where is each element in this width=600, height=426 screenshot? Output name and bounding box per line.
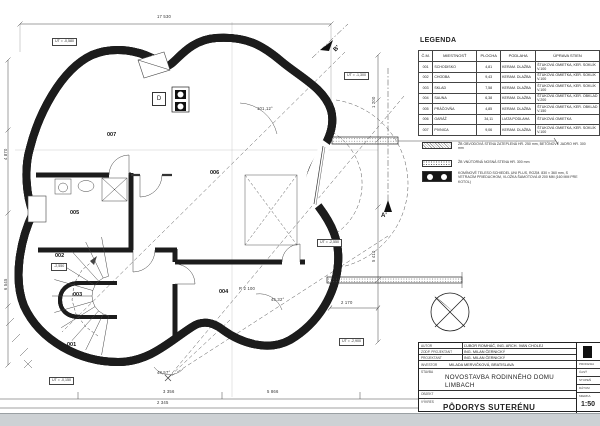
- exterior-stair: [28, 52, 170, 222]
- drawing-title: PÔDORYS SUTERÉNU: [443, 403, 535, 412]
- note-text: ŽB OBVODOVÁ STENA ZATEPLENÁ HR. 250 mm, …: [458, 142, 586, 151]
- cell-name: SAUNA: [433, 93, 477, 104]
- note-text: KOMÍNOVÉ TELESO SCHIEDEL UNI PLUS, ROZM.…: [458, 171, 586, 184]
- tb-label: AUTOR: [421, 344, 432, 348]
- cell-area: 9,43: [477, 72, 501, 83]
- col-header-room: MIESTNOSŤ: [433, 51, 477, 62]
- dim-label: 2 345: [157, 401, 168, 405]
- chimney-icon: [172, 87, 189, 112]
- interior-wall-hatch-icon: [422, 160, 452, 167]
- terrain-level-label: UT = -1,300: [344, 72, 369, 80]
- dim-label-overall-width: 17 530: [157, 15, 171, 19]
- cell-area: 7,58: [477, 83, 501, 94]
- legend-row: 002 CHODBA 9,43 KERAM. DLAŽBA ŠTUKOVÁ OM…: [419, 72, 600, 83]
- tb-label-stavba: STAVBA: [421, 370, 433, 374]
- company-logo: [583, 346, 592, 358]
- dim-label: 4 870: [4, 149, 8, 160]
- dashed-lines: [62, 52, 408, 378]
- cell-name: GARÁŽ: [433, 114, 477, 125]
- tb-side-label: MIERKA: [579, 394, 591, 398]
- dim-label: 5 866: [267, 390, 278, 394]
- cell-name: CHODBA: [433, 72, 477, 83]
- site-boundary: [0, 392, 418, 408]
- tb-label: INVESTOR: [421, 363, 437, 367]
- dim-label: 2 170: [341, 301, 352, 305]
- cell-area: 4,81: [477, 62, 501, 73]
- terrain-level-label: UT = -0,580: [52, 38, 77, 46]
- dim-label: 6 545: [4, 279, 8, 290]
- cell-floor: KERAM. DLAŽBA: [501, 62, 536, 73]
- dim-label-radius: R 2 100: [239, 287, 255, 291]
- room-label-006: 006: [210, 171, 219, 177]
- floor-level-label-002: -2,550: [51, 263, 67, 271]
- cell-floor: KERAM. DLAŽBA: [501, 125, 536, 136]
- tb-stavba-line2: LIMBACH: [445, 382, 475, 389]
- dim-label: 1 200: [372, 97, 376, 108]
- tb-side-label: DÁTUM: [579, 386, 590, 390]
- cell-area: 4,85: [477, 104, 501, 115]
- cell-name: PIVNICA: [433, 125, 477, 136]
- door-symbol-label: D: [157, 96, 161, 102]
- terrain-marks: [6, 318, 32, 368]
- north-arrow-icon: [431, 293, 469, 331]
- room-label-004: 004: [219, 290, 228, 296]
- cell-name: SCHODISKO: [433, 62, 477, 73]
- tb-side-label: PROFESIA: [579, 362, 594, 366]
- cell-walls: ŠTUKOVÁ OMIETKA, KER. OBKLAD V.200: [536, 93, 600, 104]
- col-header-number: Č.M.: [419, 51, 433, 62]
- room-label-007: 007: [107, 133, 116, 139]
- tb-value: ĽUBOR ROMHÁČ, ING. ARCH. IVAN CHOLEJ: [464, 344, 543, 348]
- dim-label-angle-garage: 101,12°: [257, 107, 273, 111]
- cell-floor: KERAM. DLAŽBA: [501, 93, 536, 104]
- legend-row: 004 SAUNA 6,38 KERAM. DLAŽBA ŠTUKOVÁ OMI…: [419, 93, 600, 104]
- section-label-a: A': [381, 213, 387, 219]
- cell-num: 001: [419, 62, 433, 73]
- legend-row: 005 PRÁČOVŇA 4,85 KERAM. DLAŽBA ŠTUKOVÁ …: [419, 104, 600, 115]
- room-label-001: 001: [67, 343, 76, 349]
- cell-num: 007: [419, 125, 433, 136]
- convergence-point-cross: [165, 375, 171, 381]
- terrain-level-label: UT = -0,150: [49, 377, 74, 385]
- dim-label: 3 356: [163, 390, 174, 394]
- chimney-symbol-icon: [422, 171, 452, 182]
- legend-row: 003 SKLAD 7,58 KERAM. DLAŽBA ŠTUKOVÁ OMI…: [419, 83, 600, 94]
- tb-label: ZODP. PROJEKTANT: [421, 350, 452, 354]
- dim-label-angle: 45,32°: [271, 298, 284, 302]
- section-marker-B: [312, 24, 348, 58]
- tb-side-label: ČASŤ: [579, 370, 587, 374]
- cell-walls: ŠTUKOVÁ OMIETKA, KER. SOKLÍK V.100: [536, 83, 600, 94]
- ceiling-void: [245, 175, 297, 245]
- legend-row: 007 PIVNICA 9,06 KERAM. DLAŽBA ŠTUKOVÁ O…: [419, 125, 600, 136]
- note-text: ŽB VNÚTORNÁ NOSNÁ STENA HR. 300 mm: [458, 160, 586, 164]
- cell-num: 003: [419, 83, 433, 94]
- col-header-area: PLOCHA: [477, 51, 501, 62]
- col-header-floor: PODLAHA: [501, 51, 536, 62]
- interior-walls: [36, 173, 305, 337]
- cell-area: 34,11: [477, 114, 501, 125]
- dim-label: 5 410: [372, 251, 376, 262]
- col-header-walls: ÚPRAVA STIEN: [536, 51, 600, 62]
- legend-row: 001 SCHODISKO 4,81 KERAM. DLAŽBA ŠTUKOVÁ…: [419, 62, 600, 73]
- cell-walls: ŠTUKOVÁ OMIETKA, KER. SOKLÍK V.100: [536, 62, 600, 73]
- room-label-005: 005: [70, 211, 79, 217]
- title-block: AUTOR ĽUBOR ROMHÁČ, ING. ARCH. IVAN CHOL…: [418, 342, 600, 412]
- room-legend-table: Č.M. MIESTNOSŤ PLOCHA PODLAHA ÚPRAVA STI…: [418, 50, 600, 136]
- cell-area: 6,38: [477, 93, 501, 104]
- cell-name: SKLAD: [433, 83, 477, 94]
- cell-walls: ŠTUKOVÁ OMIETKA, KER. OBKLAD V.150: [536, 104, 600, 115]
- dimension-lines: [6, 22, 381, 368]
- legend-title: LEGENDA: [420, 37, 456, 44]
- tb-value: ING. MILAN ČERNICKÝ: [464, 356, 505, 360]
- tb-side-label: STUPEŇ: [579, 378, 591, 382]
- drawing-sheet: 17 530 48,57° 3 356 5 866 2 345 101,12° …: [0, 0, 600, 426]
- cell-floor: KERAM. DLAŽBA: [501, 72, 536, 83]
- tb-value: ING. MILAN ČERNICKÝ: [464, 350, 505, 354]
- cell-area: 9,06: [477, 125, 501, 136]
- sink-icon: [78, 181, 94, 192]
- bathroom-fixtures: [55, 178, 127, 201]
- cell-walls: ŠTUKOVÁ OMIETKA, KER. SOKLÍK V.100: [536, 125, 600, 136]
- terrain-level-label: UT = -2,900: [339, 338, 364, 346]
- tb-label-vykres: VÝKRES: [421, 400, 434, 404]
- scale-value: 1:50: [581, 401, 595, 408]
- legend-note: KOMÍNOVÉ TELESO SCHIEDEL UNI PLUS, ROZM.…: [422, 171, 586, 184]
- room-label-003: 003: [73, 293, 82, 299]
- tb-label-objekt: OBJEKT: [421, 392, 433, 396]
- tb-stavba-line1: NOVOSTAVBA RODINNÉHO DOMU: [445, 374, 554, 381]
- exterior-wall-hatch-icon: [422, 142, 452, 149]
- cell-floor: KERAM. DLAŽBA: [501, 104, 536, 115]
- tb-label: PROJEKTANT: [421, 356, 442, 360]
- cell-floor: LIATA PODLAHA: [501, 114, 536, 125]
- viewer-background-strip: [0, 413, 600, 426]
- cell-num: 005: [419, 104, 433, 115]
- door-symbol-box: D: [152, 92, 166, 106]
- cell-num: 002: [419, 72, 433, 83]
- cell-walls: ŠTUKOVÁ OMIETKA: [536, 114, 600, 125]
- dim-label-angle-bottom: 48,57°: [157, 371, 170, 375]
- light-well: [28, 196, 46, 222]
- cell-num: 004: [419, 93, 433, 104]
- title-block-side: PROFESIA ČASŤ STUPEŇ DÁTUM MIERKA 1:50: [576, 343, 600, 413]
- cell-name: PRÁČOVŇA: [433, 104, 477, 115]
- legend-note: ŽB OBVODOVÁ STENA ZATEPLENÁ HR. 250 mm, …: [422, 142, 586, 151]
- tb-value: MILADA MERVIČKOVÁ, BRATISLAVA: [449, 363, 514, 367]
- cell-floor: KERAM. DLAŽBA: [501, 83, 536, 94]
- legend-row: 006 GARÁŽ 34,11 LIATA PODLAHA ŠTUKOVÁ OM…: [419, 114, 600, 125]
- room-label-002: 002: [55, 254, 64, 260]
- legend-header-row: Č.M. MIESTNOSŤ PLOCHA PODLAHA ÚPRAVA STI…: [419, 51, 600, 62]
- terrain-level-label: UT = -2,550: [317, 239, 342, 247]
- legend-note: ŽB VNÚTORNÁ NOSNÁ STENA HR. 300 mm: [422, 160, 586, 167]
- cell-walls: ŠTUKOVÁ OMIETKA, KER. SOKLÍK V.100: [536, 72, 600, 83]
- cell-num: 006: [419, 114, 433, 125]
